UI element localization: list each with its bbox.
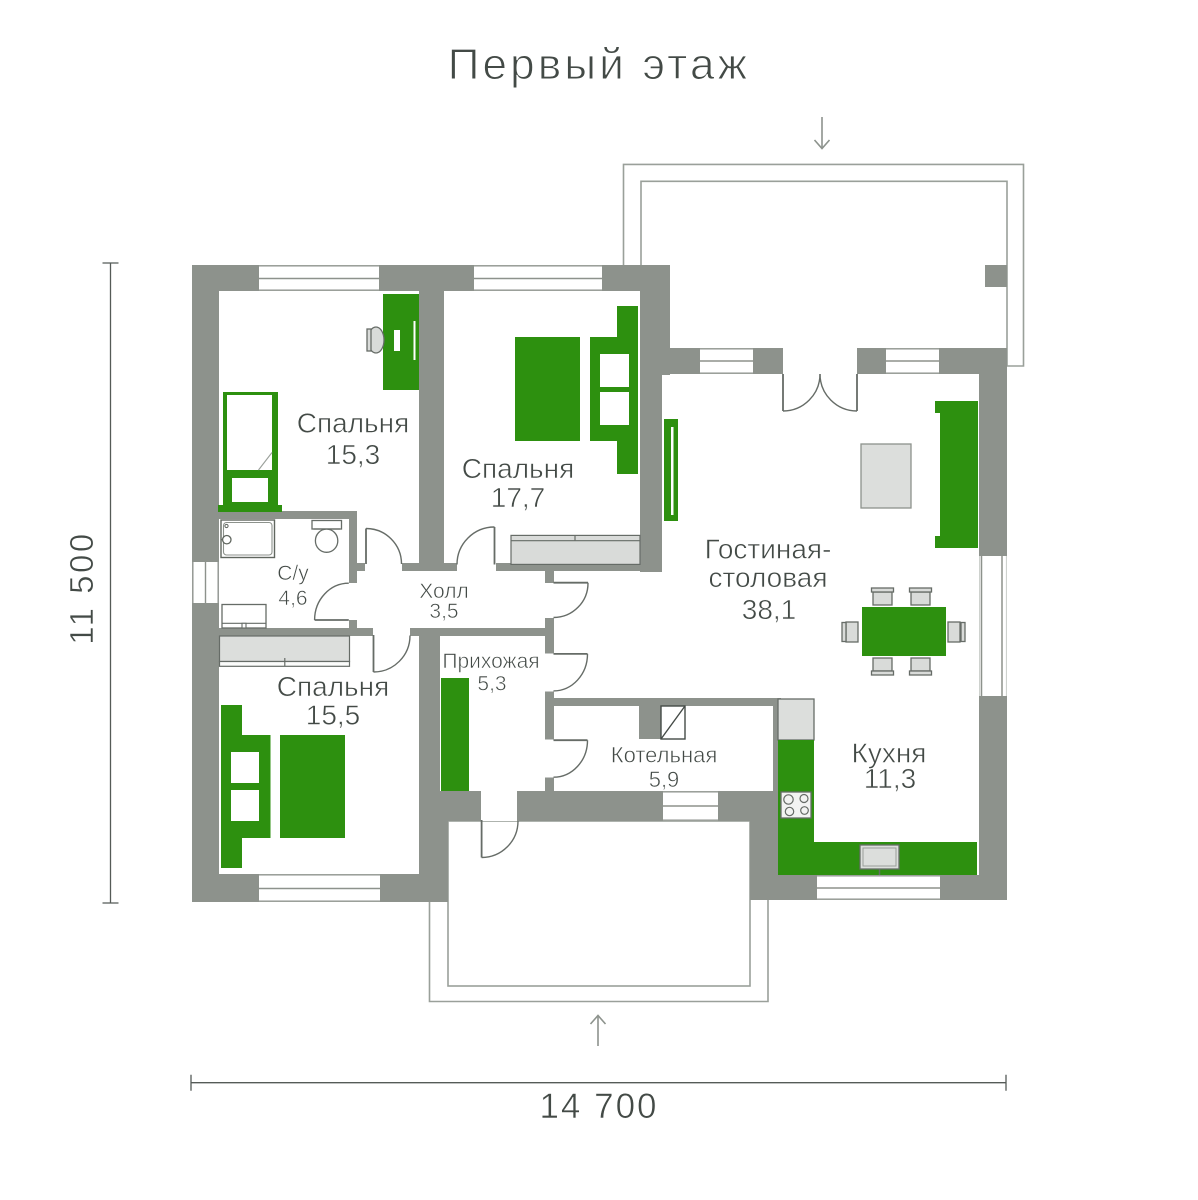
svg-text:Первый этаж: Первый этаж [448,40,751,89]
svg-text:38,1: 38,1 [742,594,797,625]
svg-text:3,5: 3,5 [429,600,458,623]
svg-text:14 700: 14 700 [539,1087,658,1126]
svg-text:Котельная: Котельная [611,743,718,768]
svg-text:5,3: 5,3 [477,673,506,696]
svg-text:столовая: столовая [709,562,828,593]
svg-text:Прихожая: Прихожая [442,650,539,673]
svg-text:4,6: 4,6 [278,587,307,610]
svg-text:Спальня: Спальня [297,408,410,439]
svg-text:Спальня: Спальня [462,453,575,484]
svg-text:Спальня: Спальня [277,671,390,702]
svg-text:5,9: 5,9 [649,767,680,792]
svg-text:Гостиная-: Гостиная- [705,534,832,565]
svg-text:11,3: 11,3 [864,763,916,794]
svg-text:15,5: 15,5 [306,700,361,731]
svg-text:15,3: 15,3 [326,439,381,470]
svg-text:17,7: 17,7 [491,482,546,513]
svg-text:11 500: 11 500 [63,531,100,644]
svg-text:С/у: С/у [277,562,309,585]
